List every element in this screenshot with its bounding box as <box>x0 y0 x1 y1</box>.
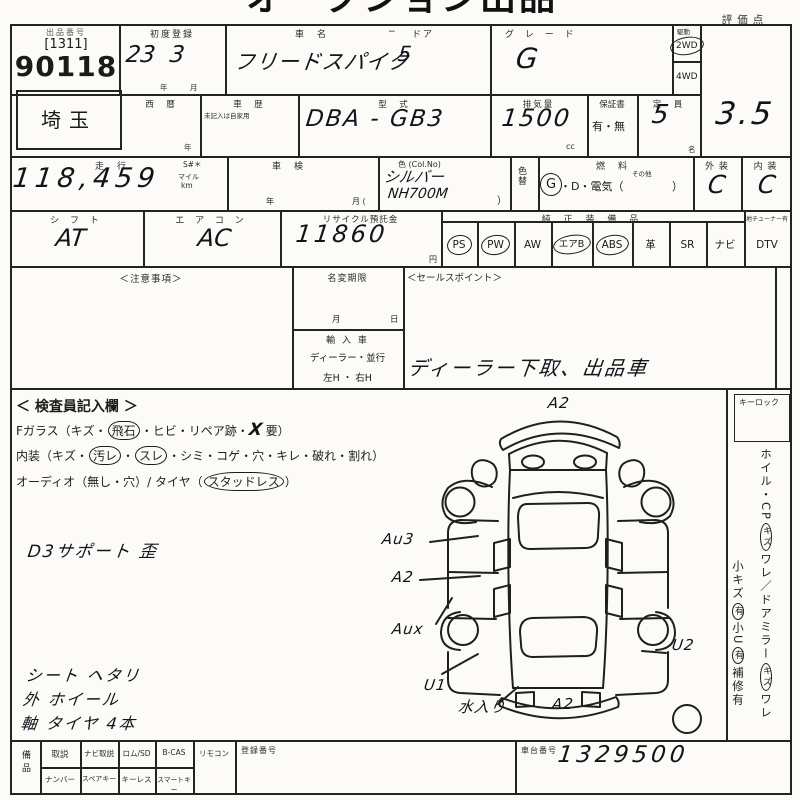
chassis-number-value: 1329500 <box>556 742 690 768</box>
divider <box>510 157 512 211</box>
diagram-damage-label: Aux <box>391 620 425 638</box>
fglass-circled-stone-chip: 飛石 <box>108 421 140 440</box>
first-registration-value: 23 3 <box>124 42 186 68</box>
month-unit: 月 <box>190 82 198 93</box>
v2-circled-ari-2: 有 <box>732 647 744 664</box>
v1-s1: ホイル・CP <box>759 448 773 521</box>
interior-circled-dirt: 汚レ <box>89 446 121 465</box>
diagram-damage-label: Au3 <box>381 530 416 548</box>
recycle-deposit-unit: 円 <box>429 254 437 265</box>
color-code-value: NH700M <box>387 186 449 202</box>
keylock-label: キーロック <box>739 397 779 408</box>
calendar-year-unit: 年 <box>184 142 192 153</box>
equip-aw: AW <box>514 222 551 268</box>
caution-label: ＜注意事項＞ <box>10 271 292 285</box>
audio-tire-line: オーディオ（無し・穴）/ タイヤ（スタッドレス） <box>16 472 297 491</box>
divider <box>292 329 403 331</box>
warranty-options: 有・無 <box>592 118 625 134</box>
equip-navi: ナビ <box>706 222 744 268</box>
diagram-damage-label: A2 <box>551 695 575 713</box>
remote-cell: リモコン <box>193 748 235 759</box>
interior-post: ・シミ・コゲ・穴・キレ・破れ・割れ） <box>168 449 384 463</box>
v1-s3: ワレ <box>759 693 773 720</box>
fglass-post: 要） <box>266 424 290 438</box>
chassis-number-label: 車台番号 <box>521 745 557 756</box>
color-value: シルバー <box>383 166 446 187</box>
interior-grade-value: C <box>756 170 777 199</box>
divider <box>378 157 380 211</box>
inspector-section-title: ＜ 検査員記入欄 ＞ <box>16 396 138 416</box>
bcas-cell: B-CAS <box>155 748 193 757</box>
color-paren: ） <box>497 192 507 207</box>
shaken-month-unit: 月 ( <box>352 196 366 207</box>
name-change-month: 月 <box>332 313 341 325</box>
equip-leather: 革 <box>632 222 669 268</box>
fglass-pre: Fガラス（キズ・ <box>16 424 107 438</box>
drive-option-4wd: 4WD <box>676 72 698 82</box>
small-scratch-vertical-note: 小キズ有小U有補修有 <box>730 560 746 740</box>
calendar-year-label: 西 暦 <box>122 98 200 110</box>
color-change-label: 色替 <box>515 166 528 208</box>
first-registration-label: 初度登録 <box>119 27 225 40</box>
inspector-note-seat: シート ヘタリ <box>25 662 143 686</box>
interior-condition-line: 内装（キズ・汚レ・スレ・シミ・コゲ・穴・キレ・破れ・割れ） <box>16 446 384 465</box>
equip-airbag: エアB <box>551 222 592 268</box>
car-name-dash: − <box>388 27 398 37</box>
navi-manual-cell: ナビ取説 <box>80 748 118 759</box>
displacement-value: 1500 <box>500 104 573 132</box>
shift-value: AT <box>54 224 87 252</box>
mileage-value: 118,459 <box>11 163 161 194</box>
recycle-deposit-value: 11860 <box>294 220 389 248</box>
diagram-damage-label: U2 <box>671 636 696 654</box>
audio-post: ） <box>285 475 297 489</box>
divider <box>40 767 193 769</box>
inspector-note-d3: D3サポート 歪 <box>26 537 159 562</box>
fglass-line: Fガラス（キズ・飛石・ヒビ・リペア跡・X 要） <box>16 420 290 440</box>
diagram-damage-label: U1 <box>423 676 448 694</box>
divider <box>235 741 237 795</box>
plate-cell: ナンバー <box>40 774 80 785</box>
smart-key-cell: スマートキー <box>155 774 193 794</box>
car-history-label: 車 歴 <box>200 98 298 110</box>
car-name-label: 車 名 <box>295 27 328 40</box>
v1-circled-kizu: キズ <box>760 523 772 551</box>
v2-s2: 小U <box>731 622 745 646</box>
audio-pre: オーディオ（無し・穴）/ タイヤ（ <box>16 475 203 489</box>
model-code-value: DBA - GB3 <box>304 106 446 132</box>
car-history-note: 未記入は自家用 <box>204 110 250 120</box>
import-handle-side: 左H ・ 右H <box>292 370 403 384</box>
displacement-unit: cc <box>566 142 575 151</box>
shaken-year-unit: 年 <box>266 196 274 207</box>
drive-option-2wd: 2WD <box>676 41 698 51</box>
v1-circled-kizu-2: キズ <box>760 663 772 691</box>
warranty-label: 保証書 <box>587 98 637 110</box>
diagram-damage-label: A2 <box>391 568 415 586</box>
v1-s2: ワレ／ドアミラー <box>759 553 773 661</box>
manual-cell: 取説 <box>40 748 80 760</box>
divider <box>403 267 405 389</box>
auction-sheet: オークション出品票 出品番号 [1311] 90118 初度登録 <box>0 0 800 800</box>
registration-number-label: 登録番号 <box>241 745 277 756</box>
divider <box>227 157 229 211</box>
year-unit: 年 <box>160 82 168 93</box>
prefecture-value: 埼玉 <box>16 104 122 133</box>
v2-s1: 小キズ <box>731 560 745 601</box>
divider <box>775 267 777 389</box>
fuel-label: 燃 料 <box>596 159 629 172</box>
import-dealer-parallel: ディーラー・並行 <box>292 350 403 364</box>
drive-label: 駆動 <box>677 26 690 36</box>
score-label: 評価点 <box>702 12 788 27</box>
import-label: 輸 入 車 <box>292 333 403 346</box>
fuel-options: ・D・電気（ <box>560 178 623 194</box>
equip-sr: SR <box>669 222 706 268</box>
divider <box>515 741 517 795</box>
divider <box>10 388 792 390</box>
divider <box>672 61 700 63</box>
interior-dot: ・ <box>122 449 134 463</box>
fuel-other-label: その他 <box>632 168 652 178</box>
divider <box>490 24 492 96</box>
mileage-s-label: S#＊ <box>183 159 202 170</box>
page-title: オークション出品票 <box>246 0 582 13</box>
fglass-mid: ・ヒビ・リペア跡・ <box>141 424 249 438</box>
car-name-value: フリードスパイク <box>232 46 411 76</box>
sales-point-value: ディーラー下取、出品車 <box>406 352 650 381</box>
score-value: 3.5 <box>714 96 777 132</box>
inspector-note-tires: 軸 タイヤ 4本 <box>20 710 139 734</box>
page-title-clipped: オークション出品票 <box>246 0 582 13</box>
keyless-cell: キーレス <box>118 774 155 785</box>
fglass-x-mark: X <box>247 420 263 440</box>
equip-dtv: DTV <box>744 222 790 268</box>
interior-circled-scuff: スレ <box>135 446 167 465</box>
interior-pre: 内装（キズ・ <box>16 449 88 463</box>
diagram-damage-label: 水入り <box>457 696 508 717</box>
diagram-damage-label: A2 <box>547 394 571 412</box>
v2-circled-ari: 有 <box>732 603 744 620</box>
name-change-day: 日 <box>390 313 399 325</box>
name-change-label: 名変期限 <box>292 271 403 284</box>
grade-label: グ レ ー ド <box>505 27 578 40</box>
divider <box>10 156 792 158</box>
exterior-grade-value: C <box>706 170 727 199</box>
aircon-value: AC <box>196 224 233 252</box>
divider <box>225 24 227 96</box>
divider <box>672 24 674 96</box>
spare-key-cell: スペアキー <box>80 774 118 784</box>
door-label: ドア <box>412 27 434 40</box>
capacity-unit: 名 <box>688 144 696 155</box>
equip-abs: ABS <box>592 222 632 268</box>
sales-point-label: ＜セールスポイント＞ <box>407 270 502 284</box>
fuel-gasoline-option: G <box>546 177 556 192</box>
wheel-cp-vertical-note: ホイル・CPキズワレ／ドアミラーキズワレ <box>758 448 774 740</box>
accessories-side-label: 備品 <box>19 750 32 790</box>
inspector-note-wheel: 外 ホイール <box>22 686 122 710</box>
equip-ps: PS <box>441 222 477 268</box>
diagram-labels: A2Au3A2AuxU1水入りA2U2 <box>380 392 730 742</box>
v2-s3: 補修有 <box>731 666 745 707</box>
lot-number: 90118 <box>14 50 118 83</box>
rom-sd-cell: ロム/SD <box>118 748 155 759</box>
equip-pw: PW <box>477 222 514 268</box>
shaken-label: 車 検 <box>272 159 305 172</box>
grade-value: G <box>514 42 540 75</box>
mileage-km-unit: km <box>181 181 193 190</box>
damage-diagram: A2Au3A2AuxU1水入りA2U2 <box>380 392 730 742</box>
circled-studless: スタッドレス <box>204 472 284 491</box>
fuel-close-paren: ） <box>672 178 683 194</box>
